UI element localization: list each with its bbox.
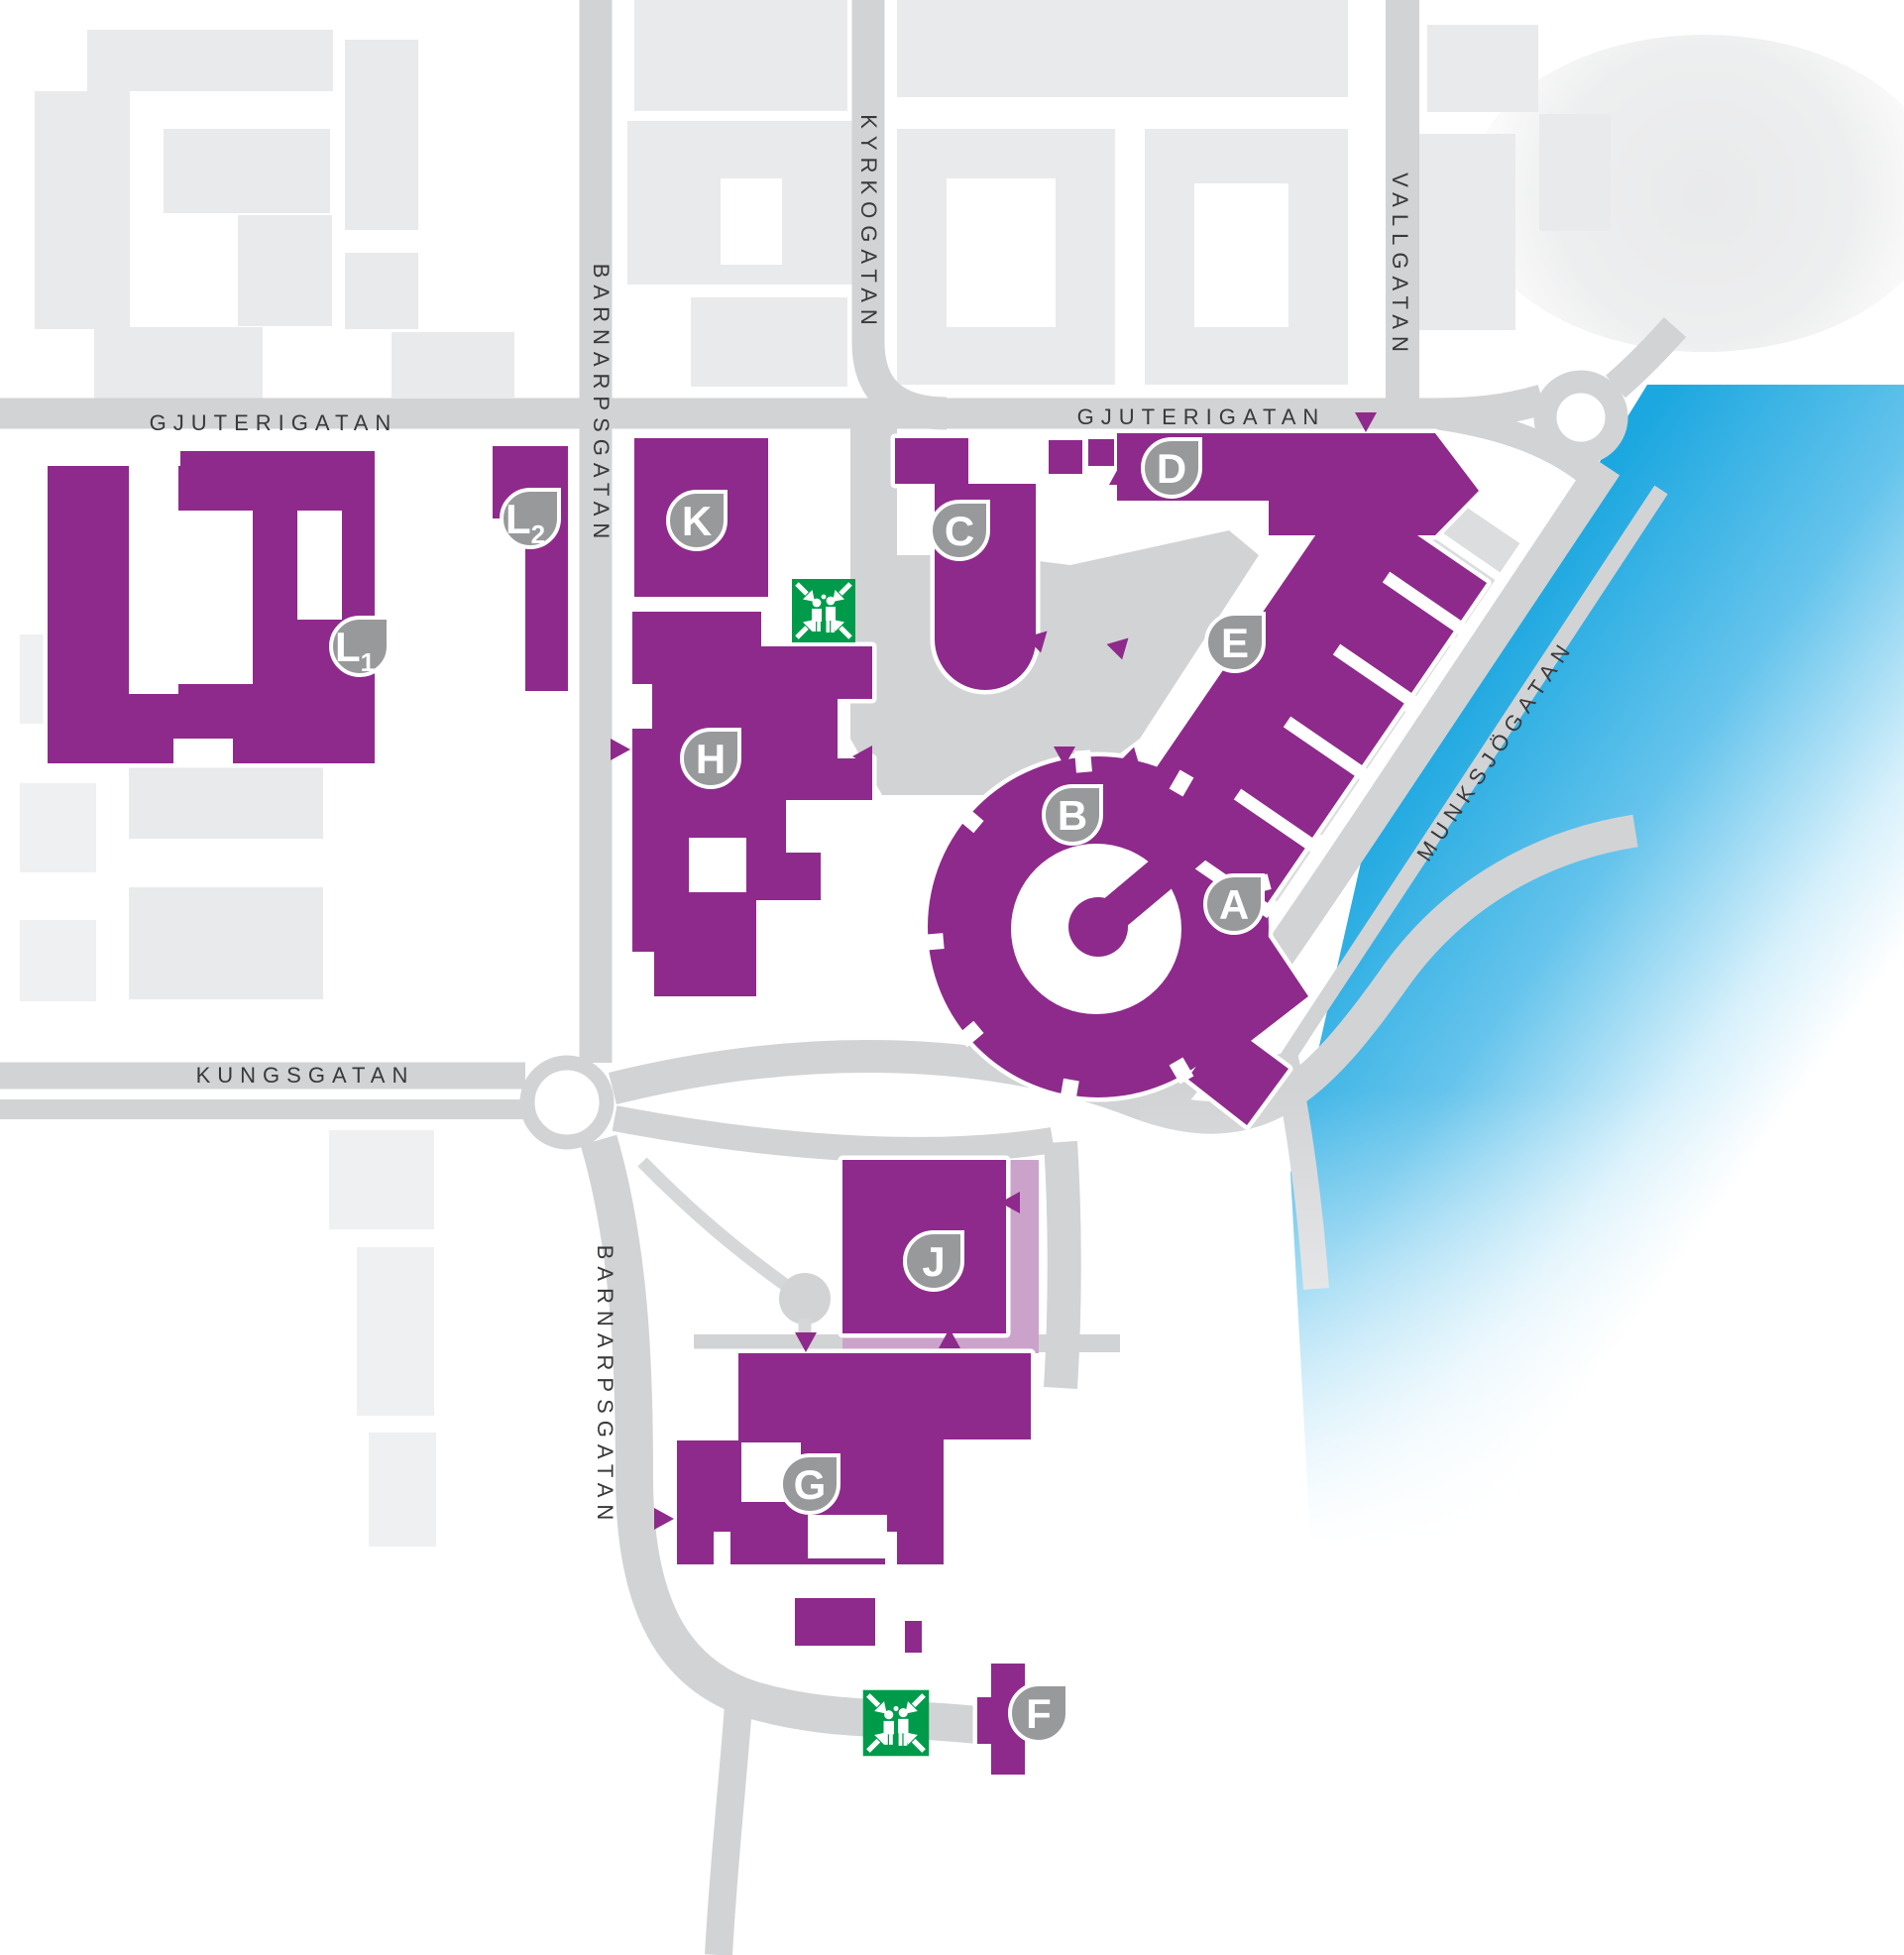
roundabout-kungsgatan <box>527 1063 607 1142</box>
svg-text:H: H <box>696 736 726 782</box>
campus-map: A B C D E F G H J K L1 L2 GJUTERIGATAN G… <box>0 0 1904 1955</box>
building-badge-d: D <box>1143 439 1200 497</box>
building-badge-l1: L1 <box>331 618 389 677</box>
building-badge-l2: L2 <box>502 490 559 549</box>
entrance-arrow-icon <box>654 1508 674 1530</box>
street-label-barnarpsgatan-south: BARNARPSGATAN <box>593 1245 617 1528</box>
svg-text:A: A <box>1219 881 1249 928</box>
svg-text:D: D <box>1157 445 1186 492</box>
building-badge-a: A <box>1205 875 1263 933</box>
building-badge-j: J <box>905 1232 962 1290</box>
building-badge-b: B <box>1044 786 1101 844</box>
assembly-point-icon <box>792 579 855 642</box>
entrance-arrow-icon <box>611 739 630 760</box>
svg-text:G: G <box>794 1461 827 1508</box>
building-badge-f: F <box>1010 1684 1067 1742</box>
svg-text:J: J <box>922 1238 945 1285</box>
building-badge-k: K <box>668 492 726 549</box>
roundabout-northeast <box>1545 382 1617 453</box>
street-label-barnarpsgatan-north: BARNARPSGATAN <box>589 264 614 546</box>
street-label-vallgatan: VALLGATAN <box>1388 172 1412 359</box>
svg-text:B: B <box>1058 792 1087 839</box>
building-badge-c: C <box>931 502 988 559</box>
street-label-gjuterigatan-east: GJUTERIGATAN <box>1077 404 1326 429</box>
building-badge-g: G <box>781 1455 839 1513</box>
assembly-point-icon <box>863 1690 930 1757</box>
building-badge-h: H <box>682 730 739 787</box>
svg-text:E: E <box>1221 620 1249 666</box>
building-badge-e: E <box>1206 614 1264 671</box>
svg-text:C: C <box>945 508 974 554</box>
svg-text:K: K <box>682 498 712 544</box>
street-label-gjuterigatan-west: GJUTERIGATAN <box>150 410 398 435</box>
svg-text:F: F <box>1026 1690 1052 1737</box>
street-label-kungsgatan: KUNGSGATAN <box>196 1063 415 1088</box>
street-label-kyrkogatan: KYRKOGATAN <box>856 114 881 332</box>
